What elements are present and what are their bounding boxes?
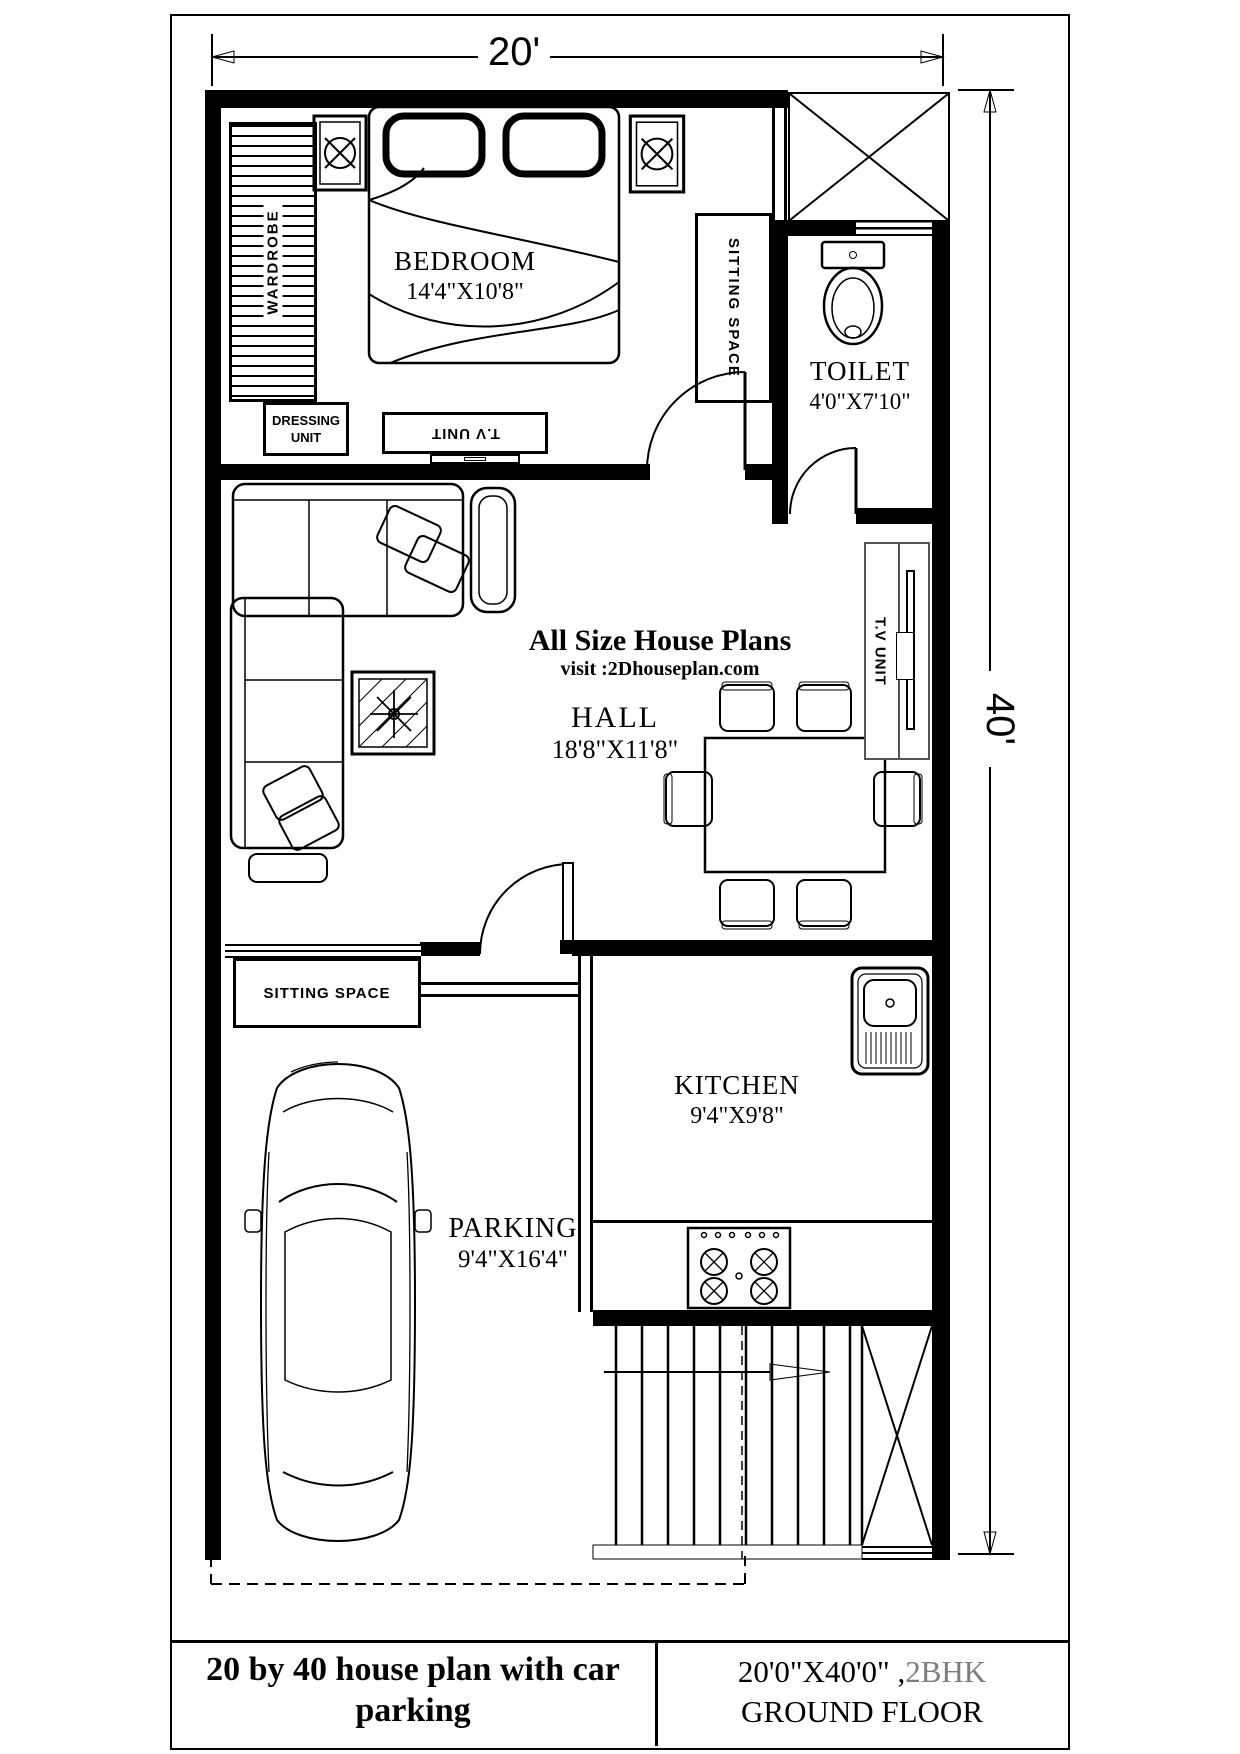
wall-hall-bottom-stub <box>420 942 480 956</box>
bedroom-name: BEDROOM <box>375 246 555 278</box>
tv-bedroom-panel <box>430 454 520 464</box>
bedroom-size: 14'4"X10'8" <box>375 278 555 306</box>
dressing-unit-label: DRESSING UNIT <box>266 413 346 447</box>
dimension-line-top <box>205 30 950 86</box>
wall-bedroom-door-stub <box>745 464 772 480</box>
bedside-table-lamp-icon <box>628 114 686 194</box>
dimension-width-text: 20' <box>478 30 550 75</box>
parking-label: PARKING 9'4"X16'4" <box>436 1212 590 1275</box>
title-block-divider <box>655 1640 658 1746</box>
parking-name: PARKING <box>436 1212 590 1245</box>
dimension-height-text: 40' <box>975 671 1025 767</box>
kitchen-size: 9'4"X9'8" <box>647 1102 827 1130</box>
wall-kitchen-stairs <box>593 1310 932 1326</box>
watermark-line2: visit :2Dhouseplan.com <box>500 658 820 681</box>
tv-unit-hall-label-wrap: T.V UNIT <box>866 544 894 758</box>
watermark-line1: All Size House Plans <box>500 624 820 658</box>
x-marked-diagonals <box>790 94 948 220</box>
title-right: 20'0"X40'0" ,2BHK GROUND FLOOR <box>660 1652 1064 1733</box>
bedroom-label: BEDROOM 14'4"X10'8" <box>375 246 555 306</box>
tv-unit-bedroom: T.V UNIT <box>382 412 548 454</box>
kitchen-counter-line <box>593 1220 932 1223</box>
xbox-left-line-1 <box>772 94 775 220</box>
title-right-size: 20'0"X40'0" , <box>738 1654 905 1689</box>
dressing-unit: DRESSING UNIT <box>263 402 349 456</box>
staircase-icon <box>593 1326 932 1566</box>
wardrobe: WARDROBE <box>229 122 317 402</box>
xbox-left-line-2 <box>784 94 787 220</box>
kitchen-name: KITCHEN <box>647 1070 827 1102</box>
sitting-space-parking-label: SITTING SPACE <box>264 985 391 1002</box>
title-right-floor: GROUND FLOOR <box>660 1692 1064 1732</box>
sitting-space-bedroom-label: SITTING SPACE <box>725 238 742 378</box>
toilet-size: 4'0"X7'10" <box>790 388 930 415</box>
wall-toilet-bottom <box>856 508 932 524</box>
tv-unit-bedroom-label: T.V UNIT <box>431 425 500 442</box>
tv-unit-hall: T.V UNIT <box>864 542 930 760</box>
title-right-line1: 20'0"X40'0" ,2BHK <box>660 1652 1064 1692</box>
wall-toilet-top <box>772 220 856 236</box>
title-right-bhk: 2BHK <box>905 1654 986 1689</box>
title-block-top-line <box>170 1640 1068 1643</box>
wall-hall-kitchen <box>572 940 932 956</box>
wall-left <box>205 90 221 1560</box>
car-icon <box>243 1042 433 1562</box>
kitchen-partition-line-2 <box>590 956 593 1312</box>
stove-icon <box>686 1226 792 1310</box>
parking-size: 9'4"X16'4" <box>436 1245 590 1275</box>
step-line-1 <box>421 982 578 985</box>
sitting-space-parking: SITTING SPACE <box>233 958 421 1028</box>
bedside-table-lamp-icon <box>312 114 368 192</box>
toilet-label: TOILET 4'0"X7'10" <box>790 356 930 415</box>
center-table-plant-icon <box>350 670 438 758</box>
wardrobe-label: WARDROBE <box>264 199 283 324</box>
dimension-line-right <box>950 84 1040 1564</box>
toilet-window <box>856 220 932 236</box>
tv-hall-bracket <box>896 632 914 680</box>
tv-unit-hall-label: T.V UNIT <box>872 617 889 686</box>
toilet-door-icon <box>788 444 860 516</box>
step-line-2 <box>421 994 578 997</box>
wall-toilet-left <box>772 220 788 524</box>
wall-right <box>932 218 950 1560</box>
parking-entry-dashed-line <box>207 1556 747 1588</box>
bedroom-door-icon <box>645 368 749 472</box>
kitchen-sink-icon <box>850 966 932 1078</box>
tv-bedroom-panel-center <box>464 457 486 461</box>
plan-sheet: 20' 40' WARDROBE <box>0 0 1240 1754</box>
kitchen-label: KITCHEN 9'4"X9'8" <box>647 1070 827 1130</box>
title-left: 20 by 40 house plan with car parking <box>178 1650 648 1732</box>
hall-left-window <box>225 944 421 958</box>
wall-bedroom-hall <box>205 464 650 480</box>
sofa-left-icon <box>229 596 349 886</box>
bed-icon <box>366 104 622 366</box>
toilet-wc-icon <box>820 240 890 350</box>
watermark: All Size House Plans visit :2Dhouseplan.… <box>500 624 820 681</box>
x-marked-open-area <box>788 92 950 222</box>
toilet-name: TOILET <box>790 356 930 388</box>
main-door-hinge-block <box>560 940 576 954</box>
